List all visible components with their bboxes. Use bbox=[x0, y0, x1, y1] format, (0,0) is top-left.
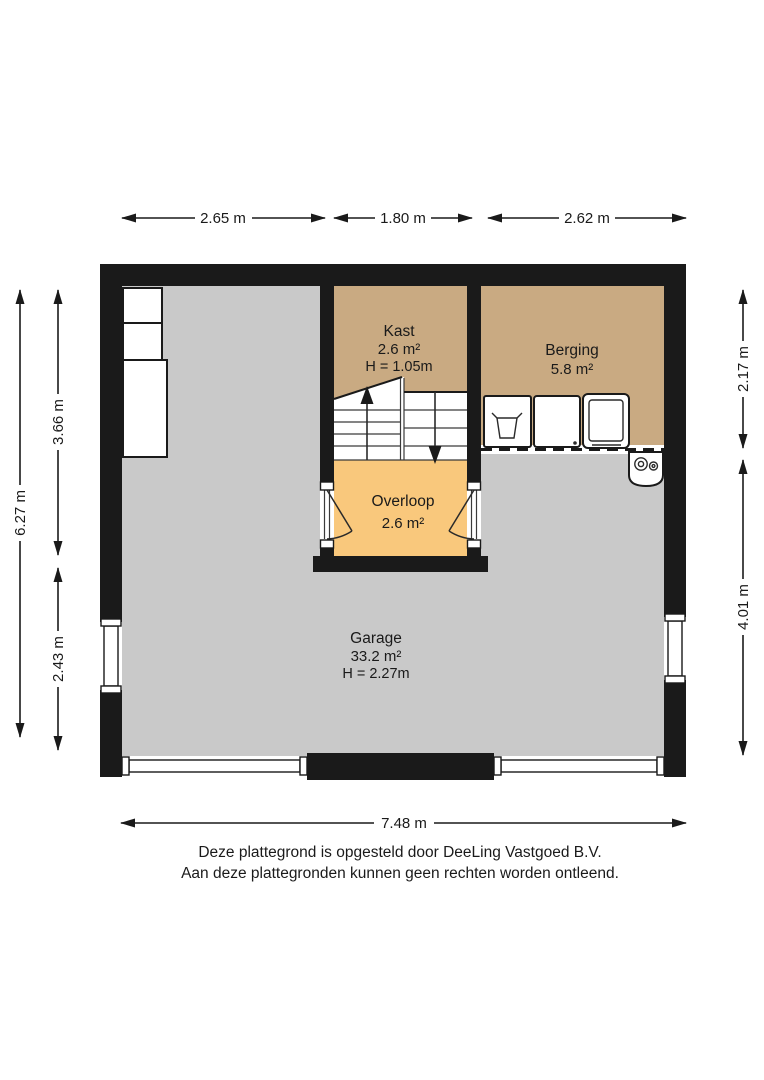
berging-label: Berging bbox=[545, 342, 598, 359]
garage-height: H = 2.27m bbox=[342, 666, 409, 682]
dimension-right-lower: 4.01 m bbox=[735, 460, 752, 755]
dim-label: 2.17 m bbox=[735, 346, 752, 392]
wall-bottom-middle bbox=[307, 753, 494, 780]
dryer-icon bbox=[534, 396, 580, 447]
kast-height: H = 1.05m bbox=[365, 359, 432, 375]
cabinet-icon bbox=[123, 323, 162, 360]
garage-area: 33.2 m² bbox=[351, 648, 402, 665]
dimension-right-upper: 2.17 m bbox=[735, 290, 752, 448]
wall-top bbox=[100, 264, 686, 286]
dimension-left-upper: 3.66 m bbox=[50, 290, 67, 555]
dim-label: 2.65 m bbox=[200, 210, 246, 227]
kast-label: Kast bbox=[383, 323, 415, 340]
footer-line-1: Deze plattegrond is opgesteld door DeeLi… bbox=[198, 844, 601, 861]
appliance-icon bbox=[583, 394, 629, 448]
dim-label: 3.66 m bbox=[50, 399, 67, 445]
dimension-top-right: 2.62 m bbox=[488, 210, 686, 227]
wall-right-lower bbox=[664, 680, 686, 777]
wall-stairwell-right-upper bbox=[467, 286, 481, 483]
floorplan-drawing: Kast 2.6 m² H = 1.05m Berging 5.8 m² Ove… bbox=[0, 0, 764, 1080]
garage-label: Garage bbox=[350, 630, 402, 647]
footer-line-2: Aan deze plattegronden kunnen geen recht… bbox=[181, 865, 619, 882]
washer-icon bbox=[484, 396, 531, 447]
wall-stairwell-left-upper bbox=[320, 286, 334, 483]
cabinet-icon bbox=[123, 288, 162, 323]
wall-right-upper bbox=[664, 264, 686, 617]
wall-left-upper bbox=[100, 264, 122, 622]
kast-area: 2.6 m² bbox=[378, 341, 421, 358]
dimension-top-left: 2.65 m bbox=[122, 210, 325, 227]
dimension-left-total: 6.27 m bbox=[12, 290, 29, 737]
dim-label: 2.62 m bbox=[564, 210, 610, 227]
dim-label: 6.27 m bbox=[12, 490, 29, 536]
window-left bbox=[100, 619, 122, 693]
dim-label: 7.48 m bbox=[381, 815, 427, 832]
wall-overloop-bottom bbox=[313, 556, 488, 572]
berging-area: 5.8 m² bbox=[551, 361, 594, 378]
dim-label: 1.80 m bbox=[380, 210, 426, 227]
overloop-area: 2.6 m² bbox=[382, 515, 425, 532]
dimension-top-middle: 1.80 m bbox=[334, 210, 472, 227]
dim-label: 2.43 m bbox=[50, 636, 67, 682]
dimension-bottom: 7.48 m bbox=[121, 815, 686, 832]
overloop-label: Overloop bbox=[372, 493, 435, 510]
window-bottom-right bbox=[494, 757, 664, 775]
cabinet-icon bbox=[123, 360, 167, 457]
window-bottom-left bbox=[122, 757, 307, 775]
dimension-left-lower: 2.43 m bbox=[50, 568, 67, 750]
boiler-icon bbox=[629, 452, 663, 486]
dim-label: 4.01 m bbox=[735, 584, 752, 630]
cabinet-icons bbox=[123, 288, 167, 457]
window-right bbox=[664, 614, 686, 683]
floorplan-page: Kast 2.6 m² H = 1.05m Berging 5.8 m² Ove… bbox=[0, 0, 764, 1080]
wall-left-lower bbox=[100, 690, 122, 777]
